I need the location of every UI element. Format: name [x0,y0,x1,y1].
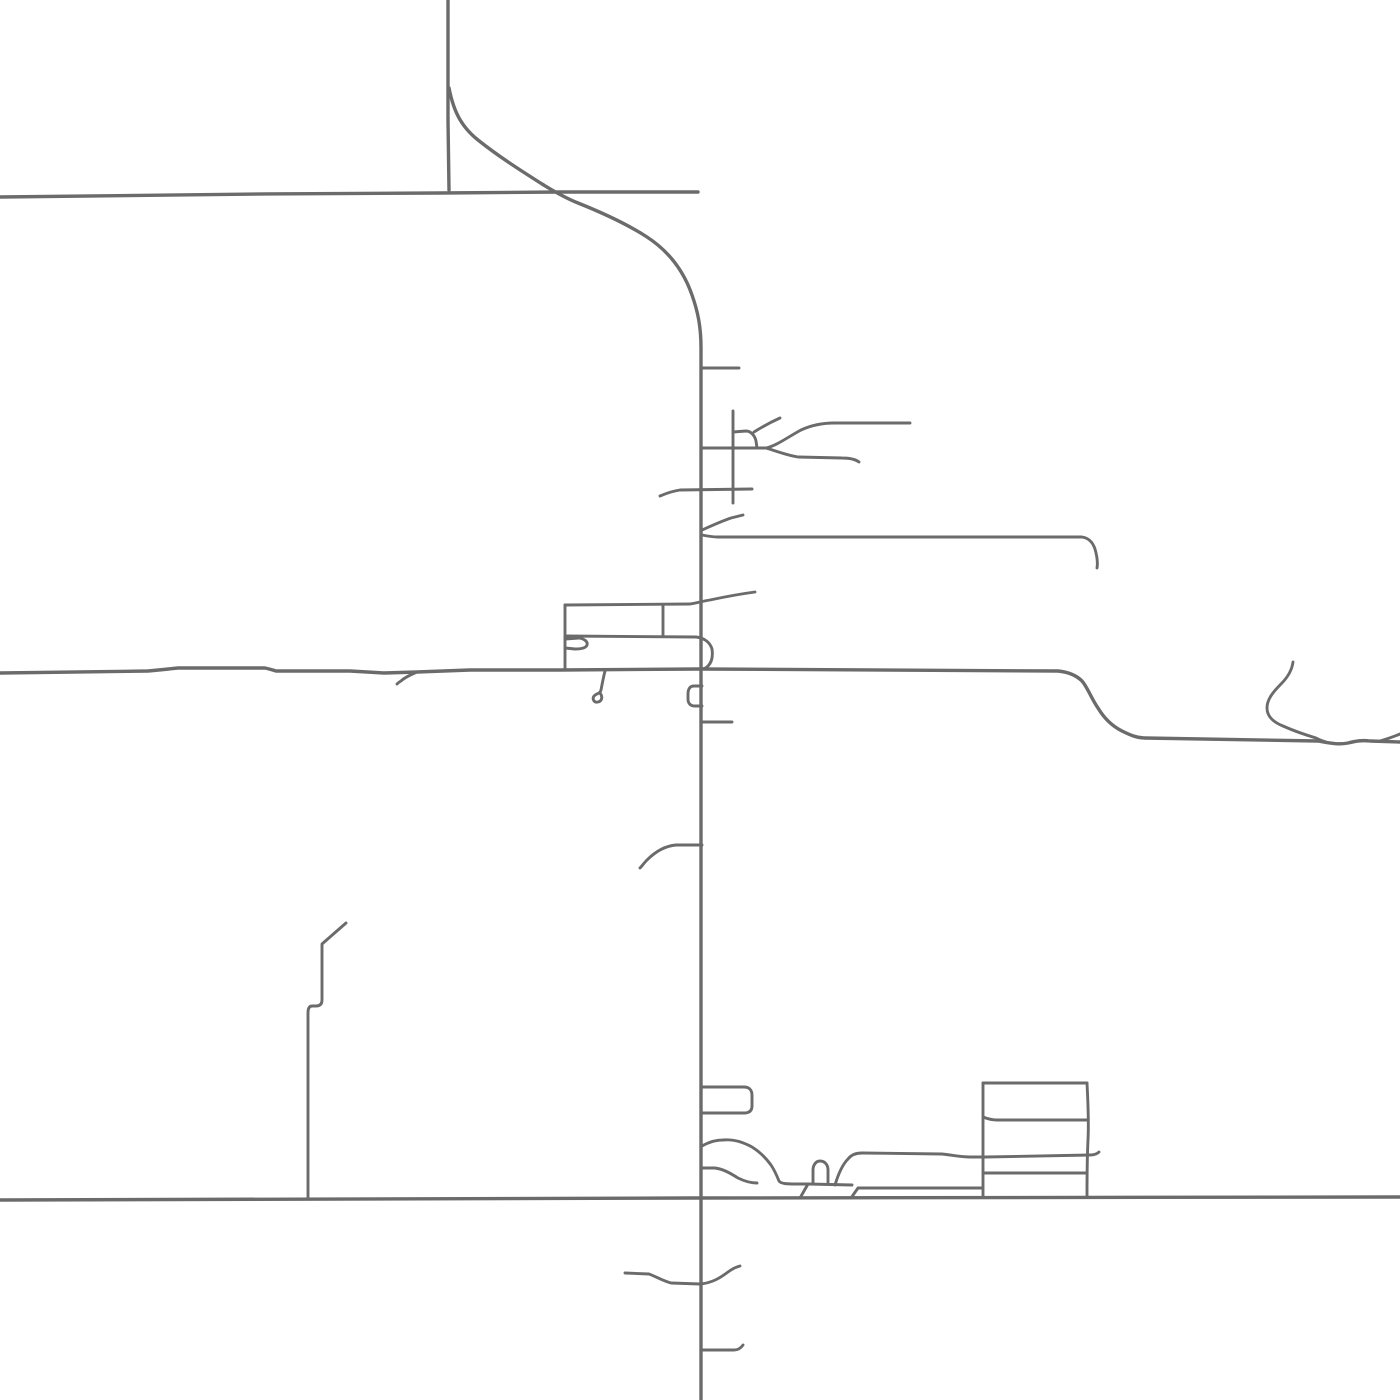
road-segment-leg-road-to-1184 [800,1184,808,1198]
road-segment-blob-upper-edge [702,1140,852,1185]
road-segment-road-537-east [702,535,1097,568]
map-container [0,0,1400,1400]
road-segment-street-1155-east [835,1152,1099,1185]
road-segment-fork-right-edge [1380,734,1400,741]
road-segment-street-rect-top [565,592,755,605]
road-segment-street-grid-diagonal [754,418,780,432]
road-segment-ladder-right-vertical [1087,1083,1088,1196]
road-segment-blob-lower-edge [702,1168,757,1183]
road-segment-block-rounded-rect [702,1087,752,1113]
road-segment-road-top-horizontal [0,192,698,197]
road-segment-arc-845-west [640,845,702,868]
road-segment-ladder-second-horizontal [983,1117,1087,1120]
road-segment-loop-hook-west [565,638,587,649]
road-segment-road-bottom-horizontal [0,1197,1400,1200]
road-segment-squiggle-branch-northeast [1267,662,1326,742]
road-segment-spur-culdesac-600 [593,671,605,702]
road-segment-street-left-vertical [308,923,346,1198]
road-segment-road-curve-and-main-vertical [449,88,701,1400]
road-segment-street-grid-branch-upper [766,423,910,448]
map-canvas [0,0,1400,1400]
road-segment-street-grid-branch-lower [766,448,859,462]
road-segment-squiggle-south [625,1266,740,1284]
road-segment-loop-n-shape [813,1161,828,1183]
road-segment-stub-south-east [702,1345,743,1350]
road-segment-street-490-west [660,489,752,496]
road-segment-street-grid-connector [733,431,757,448]
road-segment-spur-537-diagonal [702,515,743,530]
